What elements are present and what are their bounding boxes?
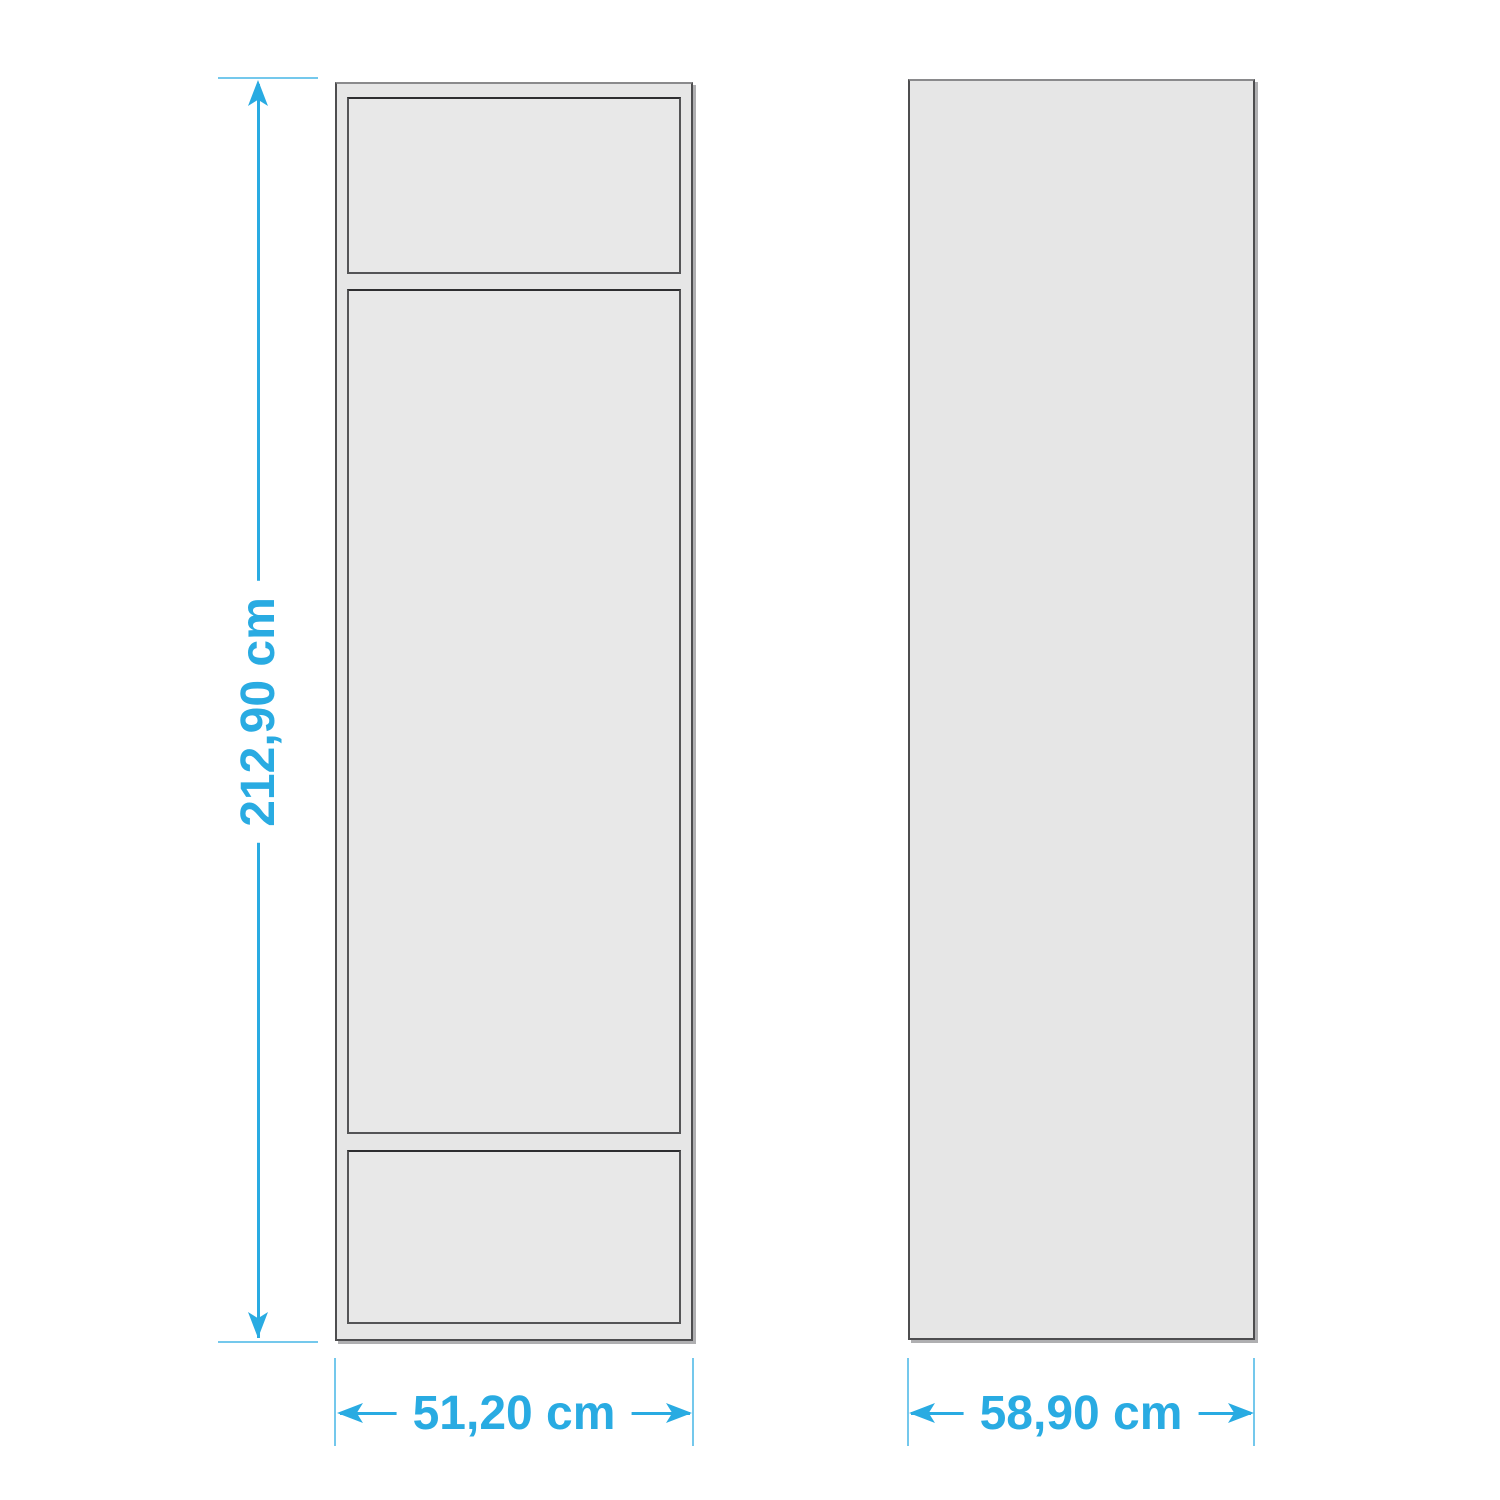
cabinet-door-panel (347, 289, 681, 1134)
front-width-extension-line-right (692, 1358, 694, 1446)
side-width-dimension-label: 58,90 cm (964, 1382, 1199, 1446)
height-extension-line-top (218, 77, 318, 79)
cabinet-side-view (908, 79, 1255, 1340)
dimension-diagram: 212,90 cm 51,20 cm 58,90 cm (0, 0, 1500, 1500)
front-width-dimension-label: 51,20 cm (397, 1382, 632, 1446)
front-width-extension-line-left (334, 1358, 336, 1446)
height-dimension-label: 212,90 cm (227, 581, 291, 843)
cabinet-bottom-panel (347, 1150, 681, 1324)
cabinet-top-panel (347, 97, 681, 274)
side-width-extension-line-right (1253, 1358, 1255, 1446)
height-extension-line-bottom (218, 1341, 318, 1343)
side-width-extension-line-left (907, 1358, 909, 1446)
cabinet-front-view (335, 82, 693, 1341)
